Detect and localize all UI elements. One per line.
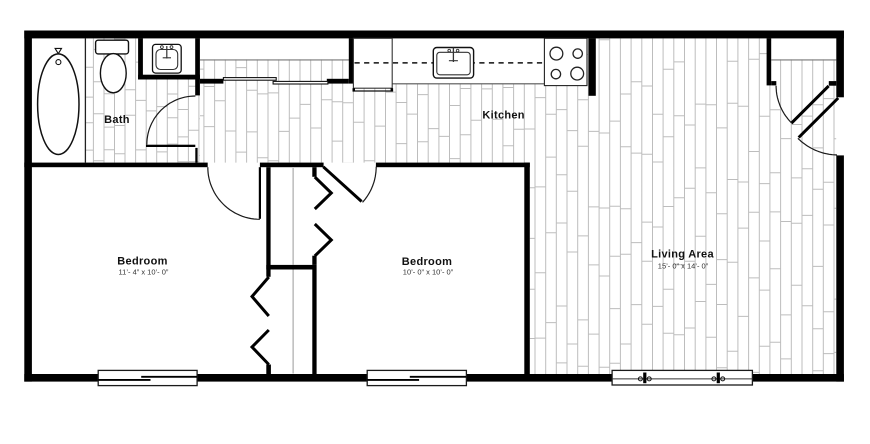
svg-text:Living Area: Living Area [651, 249, 714, 261]
svg-text:11’- 4” x 10’- 0”: 11’- 4” x 10’- 0” [119, 267, 169, 276]
svg-text:Bedroom: Bedroom [117, 256, 167, 268]
svg-text:10’- 0” x 10’- 0”: 10’- 0” x 10’- 0” [403, 268, 454, 277]
svg-text:Bath: Bath [104, 114, 130, 126]
svg-text:Bedroom: Bedroom [402, 256, 452, 268]
svg-text:Kitchen: Kitchen [482, 110, 524, 122]
svg-text:15’- 0” x 14’- 0”: 15’- 0” x 14’- 0” [658, 262, 709, 271]
